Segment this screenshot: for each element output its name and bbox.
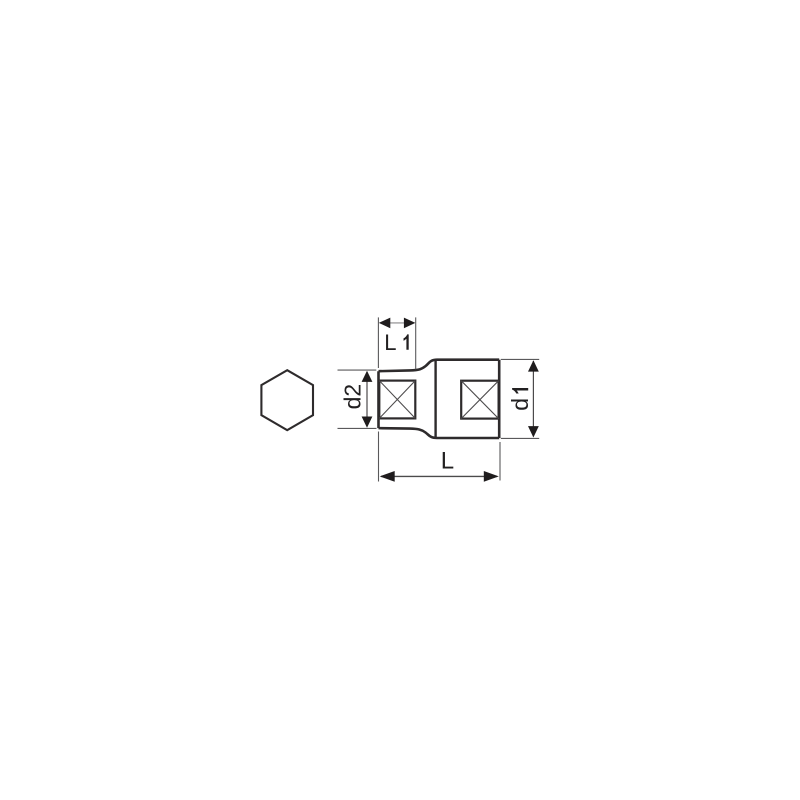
svg-text:L: L <box>441 447 454 474</box>
svg-text:d: d <box>507 398 533 411</box>
svg-text:L: L <box>384 330 396 355</box>
svg-text:d2: d2 <box>340 384 366 410</box>
